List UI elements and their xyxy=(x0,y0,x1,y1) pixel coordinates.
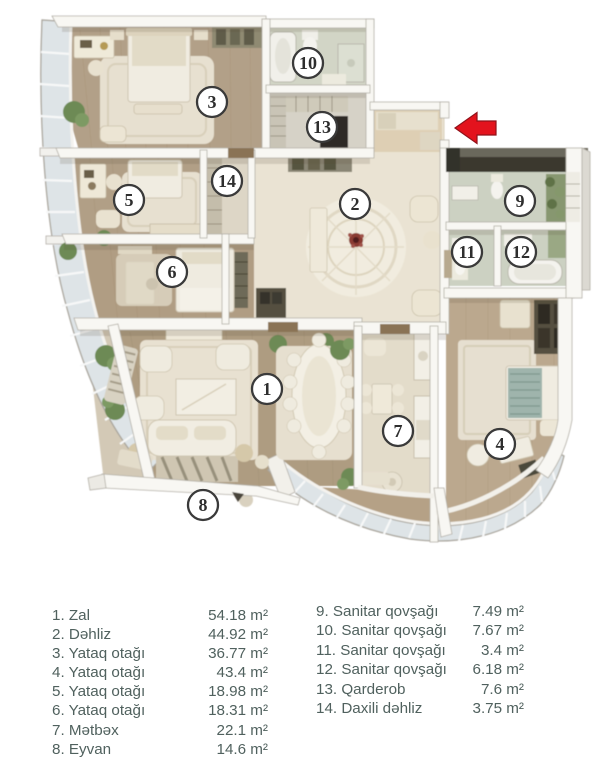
svg-text:7. Mətbəx: 7. Mətbəx xyxy=(52,722,119,739)
svg-text:7.6 m²: 7.6 m² xyxy=(481,681,524,698)
svg-text:3. Yataq otağı: 3. Yataq otağı xyxy=(52,645,145,662)
svg-text:13. Qarderob: 13. Qarderob xyxy=(316,681,406,698)
svg-text:7: 7 xyxy=(394,421,403,441)
svg-text:36.77 m²: 36.77 m² xyxy=(208,645,268,662)
svg-text:13: 13 xyxy=(313,117,331,137)
svg-text:3.4 m²: 3.4 m² xyxy=(481,642,524,659)
svg-text:11. Sanitar qovşağı: 11. Sanitar qovşağı xyxy=(316,642,446,659)
svg-text:43.4 m²: 43.4 m² xyxy=(217,664,269,681)
svg-text:12. Sanitar qovşağı: 12. Sanitar qovşağı xyxy=(316,661,447,678)
svg-text:4. Yataq otağı: 4. Yataq otağı xyxy=(52,664,145,681)
svg-text:44.92 m²: 44.92 m² xyxy=(208,626,268,643)
svg-text:6. Yataq otağı: 6. Yataq otağı xyxy=(52,702,145,719)
svg-text:10. Sanitar qovşağı: 10. Sanitar qovşağı xyxy=(316,622,447,639)
svg-text:3: 3 xyxy=(208,92,217,112)
svg-text:6.18 m²: 6.18 m² xyxy=(473,661,525,678)
svg-text:14.6 m²: 14.6 m² xyxy=(217,741,269,758)
svg-text:2. Dəhliz: 2. Dəhliz xyxy=(52,626,111,643)
svg-text:54.18 m²: 54.18 m² xyxy=(208,607,268,624)
svg-text:10: 10 xyxy=(299,53,317,73)
svg-text:5. Yataq otağı: 5. Yataq otağı xyxy=(52,683,145,700)
svg-text:14. Daxili dəhliz: 14. Daxili dəhliz xyxy=(316,700,422,717)
svg-text:1. Zal: 1. Zal xyxy=(52,607,90,624)
svg-text:7.67 m²: 7.67 m² xyxy=(473,622,525,639)
svg-text:8: 8 xyxy=(199,495,208,515)
svg-text:18.31 m²: 18.31 m² xyxy=(208,702,268,719)
svg-text:22.1 m²: 22.1 m² xyxy=(217,722,269,739)
svg-text:12: 12 xyxy=(512,242,530,262)
svg-text:4: 4 xyxy=(496,434,505,454)
svg-text:7.49 m²: 7.49 m² xyxy=(473,603,525,620)
svg-text:9: 9 xyxy=(516,191,525,211)
svg-text:18.98 m²: 18.98 m² xyxy=(208,683,268,700)
svg-text:5: 5 xyxy=(125,190,134,210)
svg-text:2: 2 xyxy=(351,194,360,214)
svg-text:9. Sanitar qovşağı: 9. Sanitar qovşağı xyxy=(316,603,438,620)
svg-text:3.75 m²: 3.75 m² xyxy=(473,700,525,717)
svg-text:6: 6 xyxy=(168,262,177,282)
svg-text:8. Eyvan: 8. Eyvan xyxy=(52,741,111,758)
svg-text:11: 11 xyxy=(458,242,475,262)
svg-text:1: 1 xyxy=(263,379,272,399)
svg-text:14: 14 xyxy=(218,171,236,191)
